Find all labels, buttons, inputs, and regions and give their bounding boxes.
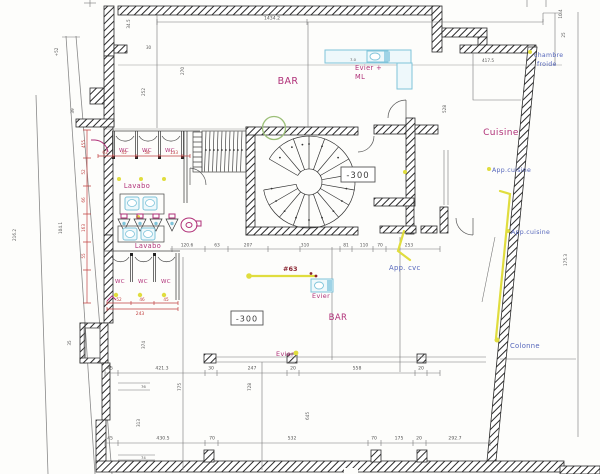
svg-text:63: 63	[214, 243, 220, 249]
evier-ml-label-2: ML	[355, 73, 365, 81]
svg-text:45: 45	[107, 366, 113, 372]
red-dim-chain-lower: 52 46 45 243	[107, 297, 178, 317]
svg-text:46: 46	[139, 297, 145, 302]
sink-drainer	[384, 52, 390, 62]
wall-kitchen	[406, 118, 415, 206]
svg-text:76: 76	[141, 384, 146, 389]
wc-label-5: WC	[138, 279, 148, 285]
svg-text:532: 532	[288, 436, 297, 442]
app-cvc-label: App. cvc	[389, 264, 421, 272]
wc-label-4: WC	[115, 279, 125, 285]
svg-text:216.2: 216.2	[12, 229, 17, 241]
wall-bottom-notch	[344, 468, 358, 473]
svg-text:7.0: 7.0	[350, 57, 357, 62]
wall-kitchen-low-1	[374, 198, 414, 206]
rotated-dimension-texts: 216.2 104.1 34.5 +52 39 252 270 775 728 …	[12, 9, 568, 427]
wall-left-2	[104, 56, 114, 127]
level-box-upper: -300	[341, 167, 375, 182]
svg-text:120.6: 120.6	[181, 243, 194, 249]
wall-left-strip	[76, 119, 114, 127]
wall-bottom	[96, 461, 564, 472]
wall-cuisine-top	[460, 45, 536, 53]
stair-enclosure-bottom	[246, 227, 358, 235]
wc-block-lower: WC WC WC 52 46 45 243	[104, 251, 180, 317]
lavabo-lower-label: Lavabo	[135, 242, 161, 250]
lavabo-upper-label: Lavabo	[124, 182, 150, 190]
colonne-label: Colonne	[510, 342, 540, 350]
svg-text:207: 207	[244, 243, 253, 249]
pier-1	[204, 450, 214, 462]
pier-mid-3	[417, 354, 426, 363]
wall-left-1	[104, 6, 114, 56]
svg-text:-300: -300	[236, 315, 258, 324]
svg-text:110: 110	[360, 243, 369, 249]
wall-left-bump	[90, 88, 104, 104]
bar-lower-label: BAR	[329, 313, 348, 323]
svg-text:313: 313	[136, 419, 141, 427]
water-heater	[181, 218, 201, 232]
evier-ml-label-1: Evier +	[355, 64, 382, 72]
svg-text:310: 310	[301, 243, 310, 249]
svg-text:-300: -300	[346, 171, 369, 181]
svg-text:20: 20	[416, 436, 422, 442]
svg-text:292.7: 292.7	[448, 436, 461, 442]
dim-top: 1434.2	[264, 16, 280, 22]
floor-plan-canvas: WC WC WC 63 45 58 133 Lavabo	[0, 0, 600, 474]
level-box-lower: -300	[231, 311, 263, 325]
svg-text:104.1: 104.1	[58, 222, 63, 234]
svg-text:175.3: 175.3	[563, 254, 568, 266]
wall-left-7	[96, 420, 106, 465]
chambre-froide-label-2: froide	[537, 61, 557, 68]
svg-text:25: 25	[561, 32, 566, 38]
svg-text:455: 455	[81, 140, 86, 148]
svg-text:66: 66	[81, 197, 86, 203]
svg-text:558: 558	[353, 366, 362, 372]
wall-top	[118, 6, 438, 15]
cuisine-label: Cuisine	[483, 128, 519, 138]
svg-text:728: 728	[247, 383, 252, 391]
wall-kitchen-low-4	[421, 226, 437, 233]
evier-mid-label: Evier	[312, 292, 330, 300]
wall-left-6	[102, 363, 110, 420]
svg-text:417.5: 417.5	[482, 58, 494, 63]
chambre-froide-label-1: chambre	[534, 52, 563, 59]
svg-text:243: 243	[136, 311, 145, 317]
wall-right-slanted	[487, 47, 537, 461]
svg-text:133: 133	[170, 150, 178, 155]
wall-left-4	[104, 235, 113, 323]
svg-text:247: 247	[248, 366, 257, 372]
svg-text:39: 39	[70, 108, 75, 114]
svg-text:163: 163	[81, 224, 86, 232]
svg-text:45: 45	[107, 436, 113, 442]
svg-text:645: 645	[305, 412, 310, 420]
svg-text:70: 70	[209, 436, 215, 442]
svg-text:430.5: 430.5	[156, 436, 169, 442]
dimension-texts: 1434.2 120.6 63 207 310 81 110 70 253 45…	[107, 16, 494, 461]
bar-upper-label: BAR	[278, 76, 299, 87]
svg-text:52: 52	[81, 169, 86, 175]
svg-text:10.4: 10.4	[558, 9, 563, 19]
app-cuisine-lower-label: App.cuisine	[511, 229, 550, 236]
svg-text:30: 30	[208, 366, 214, 372]
wall-kitchen-low-5	[440, 207, 448, 233]
svg-text:74: 74	[141, 455, 146, 460]
wall-left-notch	[114, 45, 127, 53]
wall-step-right	[442, 28, 487, 37]
svg-text:52: 52	[116, 297, 122, 302]
app-cuisine-upper-label: App.cuisine	[492, 167, 531, 174]
sink-mid	[311, 279, 333, 292]
stair-enclosure-left	[246, 127, 255, 235]
pier-3	[417, 450, 427, 462]
winder-steps	[193, 132, 202, 172]
svg-text:81: 81	[343, 243, 349, 249]
svg-text:45: 45	[163, 297, 169, 302]
svg-text:252: 252	[141, 88, 146, 96]
wc-label-6: WC	[161, 279, 171, 285]
yellow-dots-upper	[117, 177, 166, 181]
svg-text:35: 35	[67, 340, 72, 346]
svg-text:775: 775	[177, 383, 182, 391]
svg-text:20: 20	[418, 366, 424, 372]
svg-text:421.3: 421.3	[155, 366, 168, 372]
lavabo-lower: Lavabo	[118, 226, 164, 250]
svg-text:20: 20	[290, 366, 296, 372]
svg-text:58: 58	[144, 150, 150, 155]
svg-text:70: 70	[377, 243, 383, 249]
svg-text:253: 253	[405, 243, 414, 249]
wall-kitchen-low-3	[380, 226, 416, 233]
wall-left-5	[100, 323, 108, 363]
svg-text:175: 175	[395, 436, 404, 442]
svg-text:63: 63	[102, 150, 108, 155]
pier-mid-1	[204, 354, 216, 363]
svg-text:374: 374	[141, 341, 146, 349]
lavabo-upper: Lavabo	[120, 182, 164, 219]
evier-lower-label: Evier	[276, 350, 294, 358]
wall-left-3	[104, 127, 113, 235]
svg-text:55: 55	[81, 253, 86, 259]
svg-text:+52: +52	[54, 47, 59, 56]
svg-text:270: 270	[180, 67, 185, 75]
floor-plan-page: WC WC WC 63 45 58 133 Lavabo	[0, 0, 600, 474]
svg-text:70: 70	[371, 436, 377, 442]
straight-staircase	[193, 131, 246, 172]
svg-text:45: 45	[121, 150, 127, 155]
pier-2	[371, 450, 381, 462]
wall-bottom-right	[560, 466, 600, 474]
wall-top-right-return	[432, 6, 442, 52]
ref-63-label: #63	[283, 265, 298, 273]
svg-text:30: 30	[146, 45, 152, 50]
svg-text:528: 528	[442, 105, 447, 113]
wc-lavabo-divider-wall	[184, 131, 187, 203]
chambre-froide-room	[473, 53, 521, 100]
svg-text:34.5: 34.5	[126, 19, 131, 29]
